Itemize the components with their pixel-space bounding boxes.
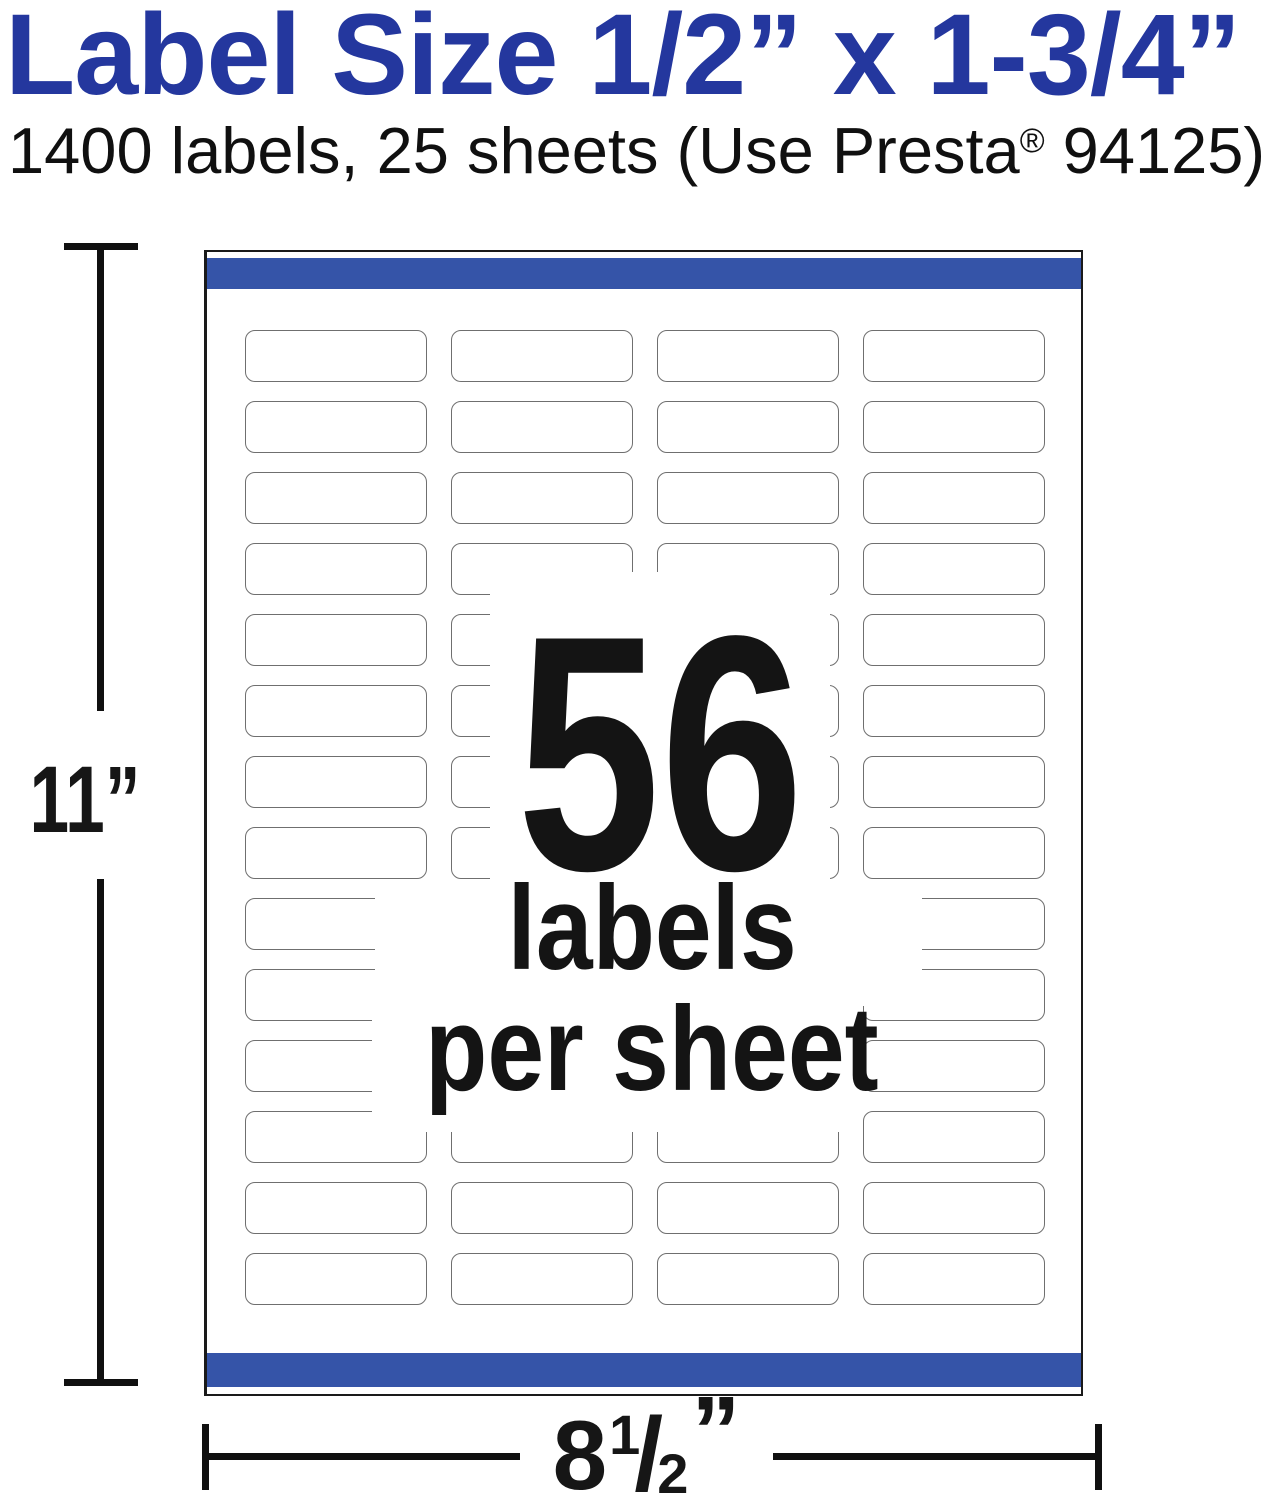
label-slot [245, 330, 427, 382]
labels-word: labels [508, 868, 797, 988]
label-slot [863, 614, 1045, 666]
label-slot [657, 401, 839, 453]
subtitle-text: 1400 labels, 25 sheets (Use Presta [8, 114, 1020, 187]
height-dimension-label: 11” [10, 752, 160, 848]
height-dimension-line-lower [97, 879, 104, 1386]
label-slot [245, 543, 427, 595]
label-slot [245, 401, 427, 453]
label-slot [451, 330, 633, 382]
label-slot [451, 1182, 633, 1234]
height-value: 11” [30, 753, 141, 848]
page-title: Label Size 1/2” x 1-3/4” [5, 0, 1240, 113]
label-slot [245, 472, 427, 524]
width-whole-number: 8 [553, 1406, 608, 1500]
label-slot [863, 827, 1045, 879]
label-slot [657, 1253, 839, 1305]
width-dimension-line-right [773, 1453, 1102, 1460]
label-slot [863, 1182, 1045, 1234]
label-slot [863, 1253, 1045, 1305]
label-slot [245, 614, 427, 666]
width-dimension-line-left [202, 1453, 520, 1460]
label-slot [863, 1040, 1045, 1092]
width-fraction-denominator: 2 [657, 1446, 688, 1500]
product-diagram: Label Size 1/2” x 1-3/4” 1400 labels, 25… [0, 0, 1279, 1500]
label-slot [451, 472, 633, 524]
overlay-count-box: 56 [490, 572, 830, 880]
label-slot [863, 472, 1045, 524]
label-slot [245, 1182, 427, 1234]
overlay-per-sheet-box: per sheet [372, 1006, 860, 1132]
label-slot [451, 401, 633, 453]
label-slot [863, 685, 1045, 737]
width-dimension-cap-right [1095, 1424, 1102, 1490]
height-dimension-line-upper [97, 243, 104, 711]
label-slot [863, 330, 1045, 382]
label-slot [863, 1111, 1045, 1163]
label-slot [657, 1182, 839, 1234]
width-inch-mark: ” [691, 1382, 740, 1480]
label-slot [863, 543, 1045, 595]
label-slot [245, 756, 427, 808]
label-slot [863, 756, 1045, 808]
label-slot [245, 1253, 427, 1305]
label-slot [863, 401, 1045, 453]
label-slot [657, 472, 839, 524]
label-slot [657, 330, 839, 382]
label-slot [245, 685, 427, 737]
subtitle: 1400 labels, 25 sheets (Use Presta® 9412… [8, 118, 1265, 183]
height-dimension-cap-bottom [64, 1379, 138, 1386]
width-dimension-label: 81/2” [520, 1398, 773, 1500]
subtitle-product-code: 94125) [1045, 114, 1265, 187]
per-sheet-words: per sheet [425, 989, 879, 1109]
label-slot [451, 1253, 633, 1305]
registered-trademark-symbol: ® [1020, 122, 1045, 160]
label-slot [245, 827, 427, 879]
